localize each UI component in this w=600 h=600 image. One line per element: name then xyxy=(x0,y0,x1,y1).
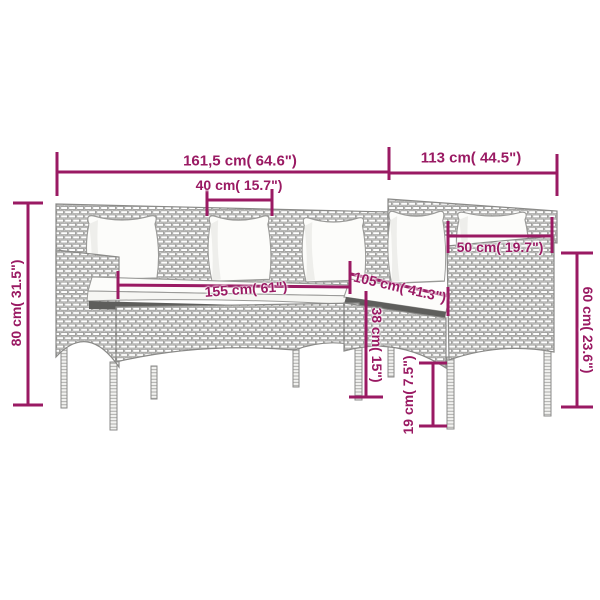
dim-side-height-line xyxy=(561,253,593,407)
leg xyxy=(293,349,299,387)
pillow xyxy=(302,218,366,282)
leg xyxy=(447,357,454,429)
leg xyxy=(110,362,117,430)
dim-overall-depth-line xyxy=(389,154,557,196)
dimension-diagram: 161,5 cm( 64.6") 113 cm( 44.5") 40 cm( 1… xyxy=(0,0,600,600)
leg xyxy=(61,348,67,408)
pillow xyxy=(208,216,271,282)
leg xyxy=(355,342,362,400)
leg xyxy=(151,366,157,399)
dim-overall-width-line xyxy=(57,147,389,196)
dim-overall-height-line xyxy=(13,203,43,405)
dim-leg-height-line xyxy=(419,363,447,426)
right-end-panel xyxy=(447,236,554,360)
pillow xyxy=(388,211,446,283)
sofa-illustration xyxy=(0,0,600,600)
leg xyxy=(544,350,551,416)
base-front xyxy=(116,303,359,362)
